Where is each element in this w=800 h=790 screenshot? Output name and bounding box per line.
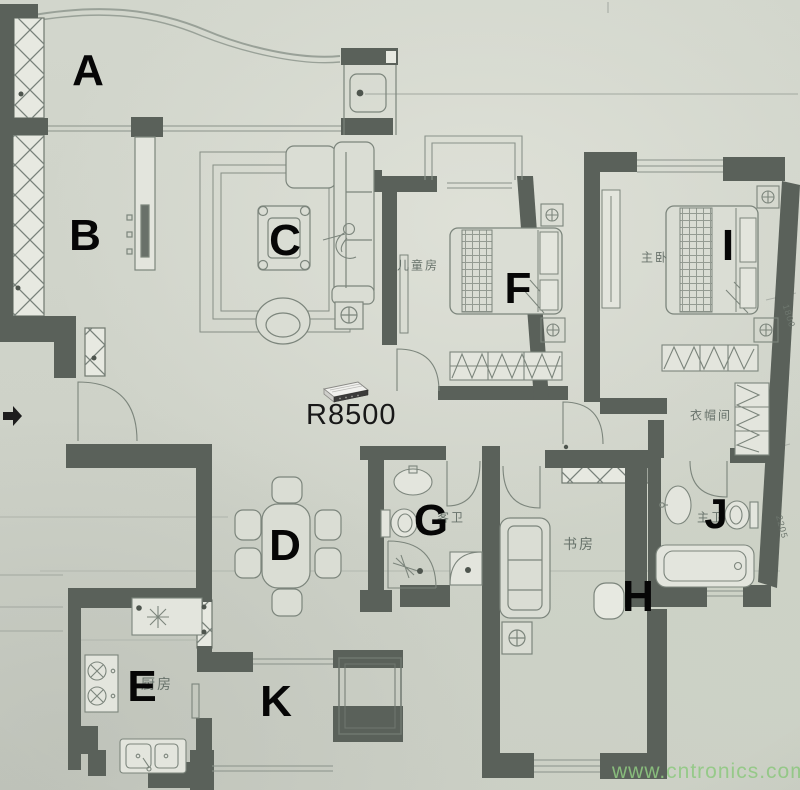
wardrobe-cloakroom-icon (735, 383, 769, 455)
washing-machine-icon (450, 552, 482, 585)
sink-icon (394, 466, 432, 495)
floorplan-drawing (0, 0, 800, 790)
watermark: www.cntronics.com (612, 760, 800, 784)
side-table-icon (335, 302, 363, 329)
sink-icon (660, 486, 691, 524)
wardrobe-childrens-icon (450, 352, 562, 380)
study-furniture (500, 518, 624, 654)
chair-icon (594, 583, 624, 619)
small-table-icon (502, 622, 532, 654)
decorative-curve (28, 9, 340, 63)
guest-bath-fixtures (381, 466, 482, 588)
dining-table-icon (235, 477, 341, 616)
kitchen-fixtures (81, 598, 202, 773)
kitchen-sink-icon (120, 739, 186, 773)
dimension-lines (0, 2, 798, 631)
wardrobe-master-icon (662, 345, 758, 371)
toilet-icon (381, 509, 417, 537)
router-model-label: R8500 (306, 399, 396, 432)
bathtub-icon (656, 545, 754, 587)
stove-icon (85, 655, 118, 712)
floorplan-photo: 儿童房主卧衣帽间书房客卫主卫厨房ABCDEFGHIJK18002205 R850… (0, 0, 800, 790)
range-hood-icon (132, 598, 202, 635)
coffee-table-icon (258, 206, 310, 270)
bed-master-icon (602, 186, 779, 342)
walls (0, 4, 800, 790)
master-bath-fixtures (656, 486, 758, 587)
tv-console-icon (127, 137, 155, 270)
daybed-icon (500, 518, 550, 618)
entry-arrow-icon (3, 406, 22, 426)
shower-icon (388, 541, 436, 588)
lounge-chair-icon (256, 298, 310, 344)
toilet-icon (725, 501, 758, 529)
